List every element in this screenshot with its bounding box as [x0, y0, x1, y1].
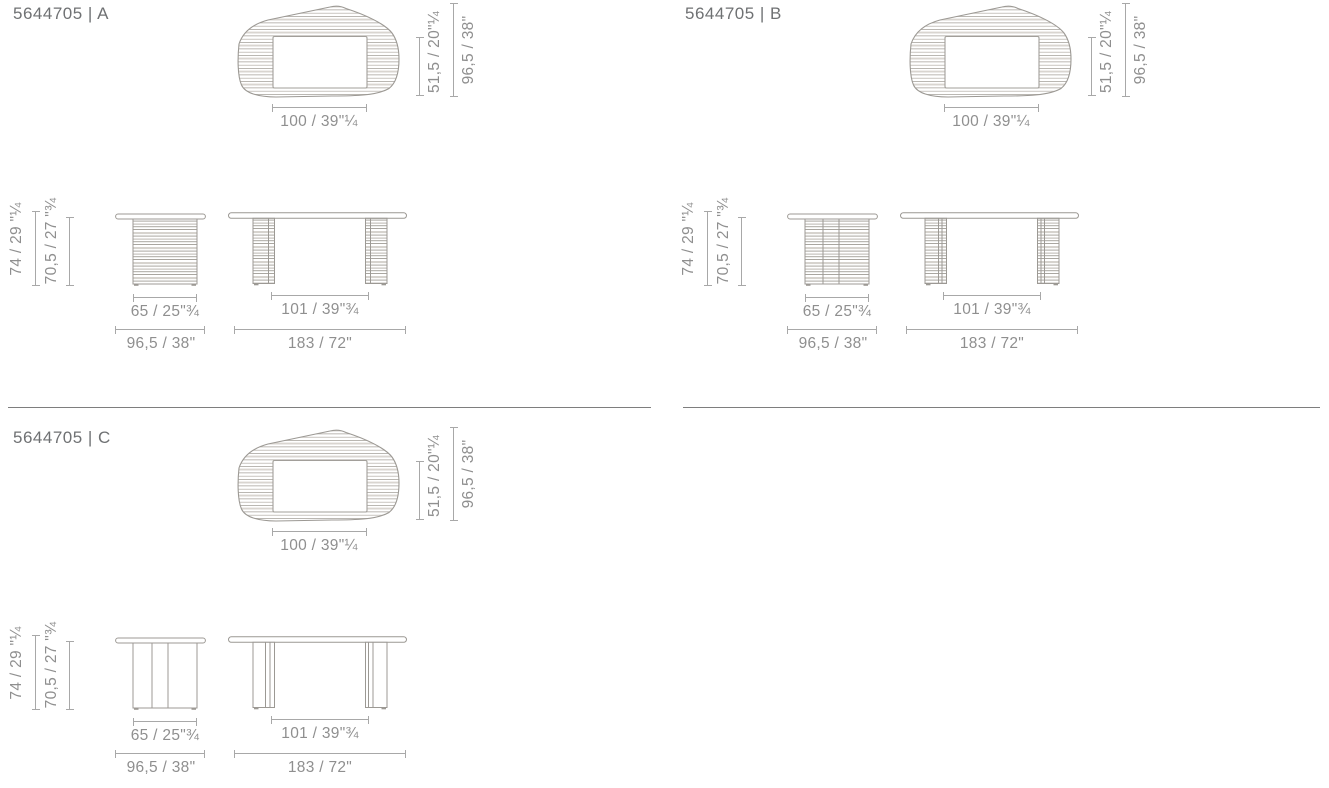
variant-code: 5644705 | B [685, 4, 782, 24]
dim-label-leg-span: 101 / 39"¾ [281, 301, 358, 319]
dim-label-base-width: 65 / 25"¾ [803, 303, 872, 321]
base-center-panel [152, 643, 168, 708]
dim-line-total-height [35, 211, 36, 286]
dim-label-base-width: 65 / 25"¾ [131, 727, 200, 745]
dim-line-base-width [133, 297, 197, 298]
dim-label-total-depth: 96,5 / 38" [460, 440, 478, 509]
dim-line-total-depth [453, 3, 454, 97]
dim-label-total-height: 74 / 29 "¼ [680, 202, 698, 275]
dim-label-leg-span: 101 / 39"¾ [953, 301, 1030, 319]
dim-line-total-width [234, 753, 406, 754]
table-top-slab [229, 637, 407, 643]
dim-line-top-width [272, 107, 367, 108]
variant-code: 5644705 | A [13, 4, 109, 24]
leg-right [366, 218, 388, 283]
dim-line-total-depth [453, 427, 454, 521]
dim-line-base-height [69, 217, 70, 286]
foot-left [134, 284, 139, 286]
foot-left [134, 708, 139, 710]
side-view-drawing [115, 637, 206, 710]
dim-line-top-width [272, 531, 367, 532]
foot-right [192, 284, 197, 286]
dim-label-inset-depth: 51,5 / 20"¼ [426, 11, 444, 93]
dim-label-base-height: 70,5 / 27 "¾ [43, 622, 61, 709]
dim-line-inset-depth [419, 37, 420, 96]
leg-left [253, 642, 275, 707]
section-divider-right [683, 407, 1320, 408]
dim-line-depth [115, 329, 205, 330]
dim-label-total-depth: 96,5 / 38" [1132, 16, 1150, 85]
table-top-slab [901, 213, 1079, 219]
dim-label-total-width: 183 / 72" [288, 335, 352, 353]
foot-left [926, 284, 931, 286]
foot-right [192, 708, 197, 710]
dim-line-base-height [741, 217, 742, 286]
side-view-drawing [115, 213, 206, 286]
variant-b-section: 5644705 | B 51,5 / 20"¼ 96,5 / 38" 100 /… [672, 0, 1329, 400]
dim-line-leg-span [271, 295, 369, 296]
front-view-drawing [900, 212, 1079, 286]
dim-label-leg-span: 101 / 39"¾ [281, 725, 358, 743]
side-view-drawing [787, 213, 878, 286]
dim-line-leg-span [943, 295, 1041, 296]
dim-line-total-depth [1125, 3, 1126, 97]
leg-left [925, 218, 947, 283]
dim-label-top-width: 100 / 39"¼ [952, 113, 1029, 131]
dim-label-base-width: 65 / 25"¾ [131, 303, 200, 321]
dim-label-inset-depth: 51,5 / 20"¼ [426, 435, 444, 517]
dim-line-base-width [805, 297, 869, 298]
dim-label-total-height: 74 / 29 "¼ [8, 626, 26, 699]
dim-label-inset-depth: 51,5 / 20"¼ [1098, 11, 1116, 93]
tabletop-inset [273, 461, 367, 513]
leg-left [253, 218, 275, 283]
table-top-slab [788, 214, 878, 219]
dim-line-total-width [234, 329, 406, 330]
dim-line-total-width [906, 329, 1078, 330]
foot-right [1054, 284, 1059, 286]
dim-line-top-width [944, 107, 1039, 108]
top-view-drawing [905, 3, 1077, 100]
front-view-drawing [228, 636, 407, 710]
top-view-drawing [233, 427, 405, 524]
table-base [805, 219, 869, 284]
foot-left [254, 284, 259, 286]
dim-line-total-height [35, 635, 36, 710]
foot-right [382, 708, 387, 710]
variant-code: 5644705 | C [13, 428, 111, 448]
table-top-slab [116, 638, 206, 643]
dim-line-leg-span [271, 719, 369, 720]
dim-label-top-width: 100 / 39"¼ [280, 537, 357, 555]
dim-line-base-height [69, 641, 70, 710]
dim-label-depth: 96,5 / 38" [799, 335, 868, 353]
dim-label-total-depth: 96,5 / 38" [460, 16, 478, 85]
dim-label-top-width: 100 / 39"¼ [280, 113, 357, 131]
foot-right [382, 284, 387, 286]
dim-label-base-height: 70,5 / 27 "¾ [715, 198, 733, 285]
tabletop-inset [945, 37, 1039, 89]
dim-label-depth: 96,5 / 38" [127, 759, 196, 777]
dim-line-depth [115, 753, 205, 754]
front-view-drawing [228, 212, 407, 286]
foot-right [864, 284, 869, 286]
foot-left [254, 708, 259, 710]
variant-a-section: 5644705 | A 51,5 / 20"¼ 96,5 / 38" 100 /… [0, 0, 660, 400]
dim-label-total-width: 183 / 72" [960, 335, 1024, 353]
dim-label-depth: 96,5 / 38" [127, 335, 196, 353]
foot-left [806, 284, 811, 286]
table-top-slab [229, 213, 407, 219]
table-top-slab [116, 214, 206, 219]
section-divider-left [8, 407, 651, 408]
dim-label-base-height: 70,5 / 27 "¾ [43, 198, 61, 285]
dim-label-total-width: 183 / 72" [288, 759, 352, 777]
dim-line-base-width [133, 721, 197, 722]
spec-sheet: 5644705 | A 51,5 / 20"¼ 96,5 / 38" 100 /… [0, 0, 1329, 788]
top-view-drawing [233, 3, 405, 100]
dim-line-inset-depth [419, 461, 420, 520]
dim-label-total-height: 74 / 29 "¼ [8, 202, 26, 275]
variant-c-section: 5644705 | C 51,5 / 20"¼ 96,5 / 38" 100 /… [0, 424, 660, 788]
dim-line-inset-depth [1091, 37, 1092, 96]
tabletop-inset [273, 37, 367, 89]
dim-line-total-height [707, 211, 708, 286]
dim-line-depth [787, 329, 877, 330]
table-base [133, 219, 197, 284]
